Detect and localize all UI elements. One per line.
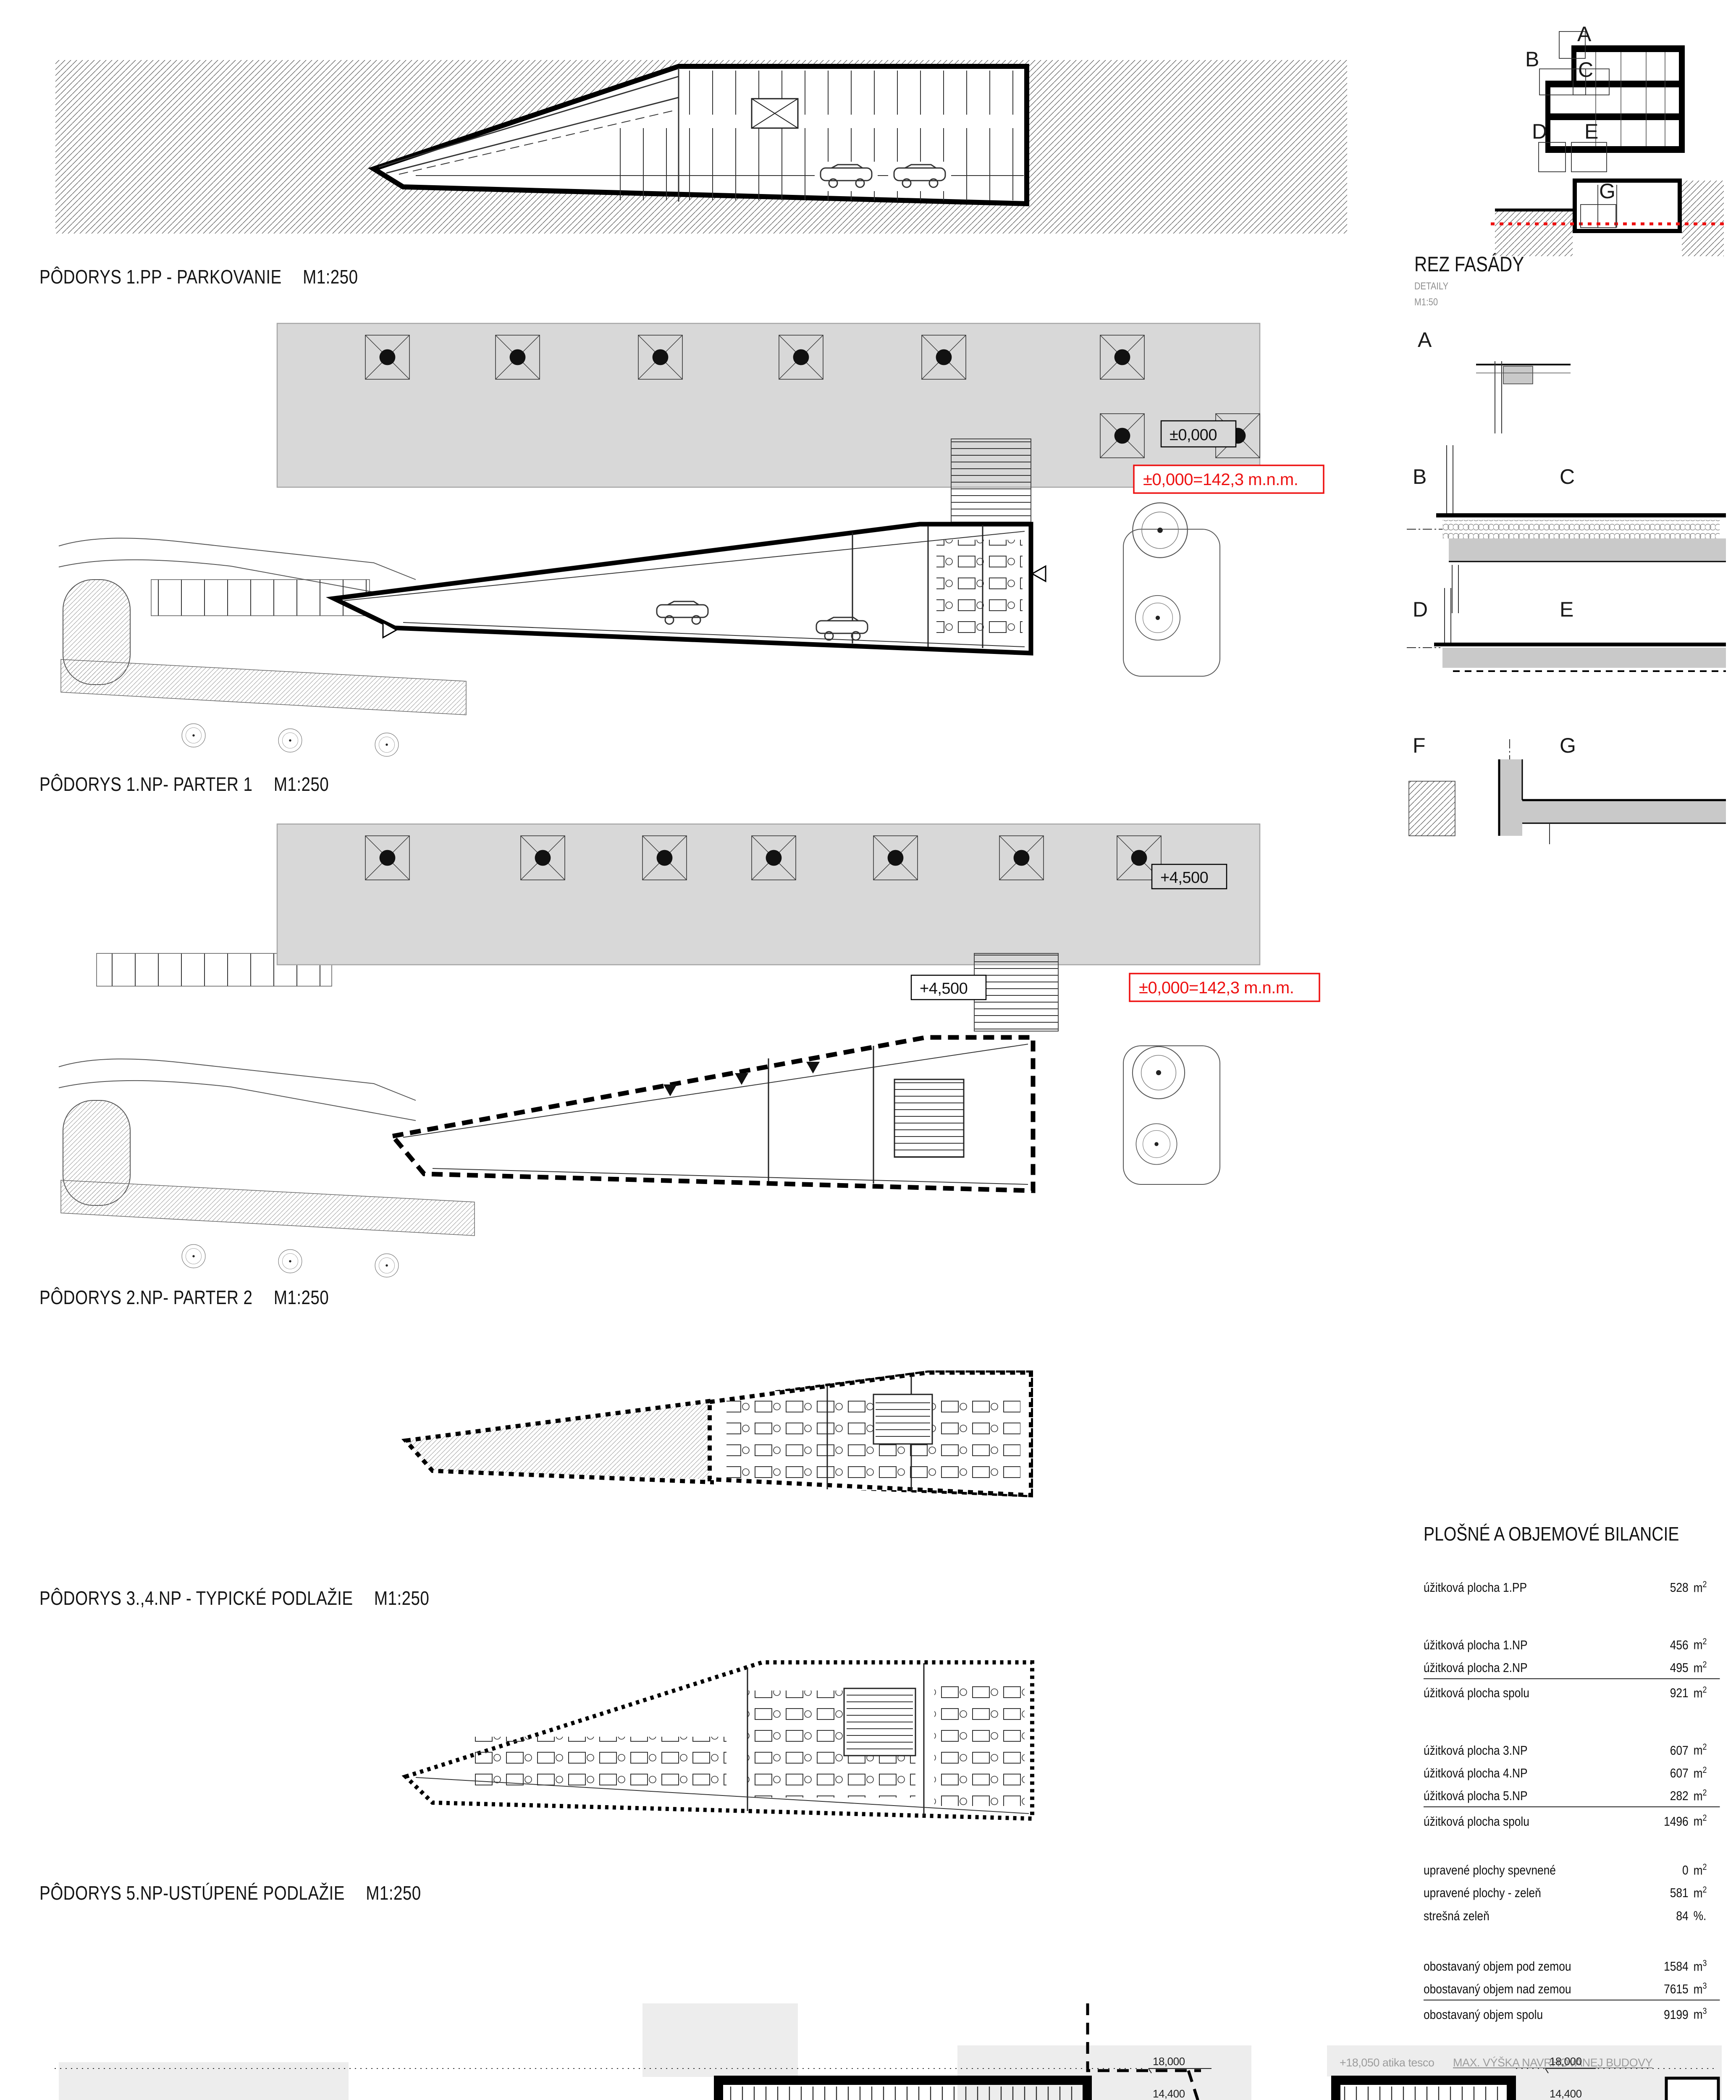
row-value: 607 [1642,1763,1689,1783]
table-row: upravené plochy spevnené 0 m2 [1424,1857,1720,1880]
plan-title: PÔDORYS 2.NP- PARTER 2 [39,1286,252,1308]
svg-text:18,000: 18,000 [1550,2055,1582,2068]
table-row: úžitková plocha 1.NP 456 m2 [1424,1632,1720,1654]
row-unit: m2 [1689,1680,1720,1703]
letter-f: F [1413,734,1425,757]
row-value: 456 [1642,1635,1689,1655]
plan-scale: M1:250 [303,266,358,288]
context-note: +18,050 atika tesco [1340,2056,1434,2069]
row-value: 921 [1642,1683,1689,1703]
level-annotation: ±0,000 [1170,426,1217,444]
sidewalk-hatch [61,1180,475,1236]
letter-b: B [1525,47,1539,71]
table-row: úžitková plocha 2.NP 495 m2 [1424,1655,1720,1677]
facade-key-drawing: A B C D E G [1491,13,1726,256]
letter-c: C [1578,58,1593,81]
facade-key-title: REZ FASÁDY [1414,252,1545,276]
plan-34np-drawing [349,1352,1062,1520]
row-unit: m3 [1689,1953,1720,1976]
table-separator [1424,1678,1720,1679]
row-unit: m2 [1689,1655,1720,1677]
plan-title: PÔDORYS 1.PP - PARKOVANIE [39,266,282,288]
table-separator [1424,2000,1720,2000]
letter-d: D [1413,598,1428,621]
row-label: úžitková plocha spolu [1424,1811,1642,1831]
svg-text:14,400: 14,400 [1550,2087,1582,2100]
row-unit: m2 [1689,1575,1720,1597]
row-label: úžitková plocha 2.NP [1424,1658,1642,1677]
letter-a: A [1577,22,1592,46]
row-label: upravené plochy spevnené [1424,1860,1642,1880]
plan-5np-drawing [349,1638,1062,1848]
table-row: úžitková plocha 3.NP 607 m2 [1424,1737,1720,1760]
table-row: úžitková plocha spolu 1496 m2 [1424,1808,1720,1831]
row-unit: m3 [1689,1976,1720,1999]
row-unit: m2 [1689,1808,1720,1831]
row-value: 528 [1642,1578,1689,1597]
entrance-arrow [1032,566,1046,581]
row-unit: m3 [1689,2001,1720,2024]
row-unit: m2 [1689,1760,1720,1783]
row-label: úžitková plocha 1.NP [1424,1635,1642,1655]
letter-e: E [1560,598,1573,621]
plan-34np-label: PÔDORYS 3.,4.NP - TYPICKÉ PODLAŽIEM1:250 [39,1587,503,1609]
plan-1np-label: PÔDORYS 1.NP- PARTER 1M1:250 [39,773,384,795]
plan-title: PÔDORYS 5.NP-USTÚPENÉ PODLAŽIE [39,1882,345,1904]
letter-c: C [1560,465,1575,488]
svg-text:14,400: 14,400 [1153,2087,1185,2100]
drawing-sheet: PÔDORYS 1.PP - PARKOVANIEM1:250 ±0,000 [0,0,1736,2100]
row-label: úžitková plocha spolu [1424,1683,1642,1703]
row-label: obostavaný objem nad zemou [1424,1979,1642,1999]
terrace-hatch [406,1402,710,1479]
plan-2np-label: PÔDORYS 2.NP- PARTER 2M1:250 [39,1286,384,1309]
plan-scale: M1:250 [366,1882,421,1904]
row-value: 581 [1642,1883,1689,1903]
letter-d: D [1532,120,1547,143]
plan-scale: M1:250 [374,1587,429,1609]
table-separator [1424,1806,1720,1807]
plan-title: PÔDORYS 1.NP- PARTER 1 [39,773,252,795]
facade-details-drawing: A B C D E F G [1403,319,1726,844]
plan-1np-drawing: ±0,000 ±0,000=142,3 m.n.m. [55,311,1344,781]
plan-1pp-label: PÔDORYS 1.PP - PARKOVANIEM1:250 [39,265,419,288]
table-row: úžitková plocha 5.NP 282 m2 [1424,1783,1720,1806]
plan-2np-drawing: +4,500 +4,500 ±0,000=142,3 m.n.m. [55,811,1344,1294]
letter-e: E [1584,120,1598,143]
plan-title: PÔDORYS 3.,4.NP - TYPICKÉ PODLAŽIE [39,1587,353,1609]
row-value: 607 [1642,1740,1689,1760]
letter-b: B [1413,465,1427,488]
table-row: obostavaný objem pod zemou 1584 m3 [1424,1953,1720,1976]
row-value: 495 [1642,1658,1689,1677]
row-label: úžitková plocha 1.PP [1424,1578,1642,1597]
plan-scale: M1:250 [274,773,329,795]
table-row: obostavaný objem spolu 9199 m3 [1424,2001,1720,2024]
row-label: strešná zeleň [1424,1906,1642,1926]
row-unit: m2 [1689,1737,1720,1760]
row-value: 7615 [1642,1979,1689,1999]
table-row: úžitková plocha 1.PP 528 m2 [1424,1575,1720,1597]
plan-1pp-drawing [55,59,1352,277]
row-value: 9199 [1642,2005,1689,2024]
row-value: 0 [1642,1860,1689,1880]
table-title: PLOŠNÉ A OBJEMOVÉ BILANCIE [1424,1522,1720,1545]
level-annotation: +4,500 [1160,869,1208,887]
datum-annotation: ±0,000=142,3 m.n.m. [1139,979,1294,997]
table-row: úžitková plocha 4.NP 607 m2 [1424,1760,1720,1783]
row-unit: m2 [1689,1880,1720,1903]
table-row: strešná zeleň 84 %. [1424,1903,1720,1925]
row-value: 84 [1642,1906,1689,1926]
row-value: 1584 [1642,1956,1689,1976]
row-label: obostavaný objem pod zemou [1424,1956,1642,1976]
row-label: úžitková plocha 4.NP [1424,1763,1642,1783]
row-value: 282 [1642,1786,1689,1806]
plan-5np-label: PÔDORYS 5.NP-USTÚPENÉ PODLAŽIEM1:250 [39,1882,494,1904]
facade-key-subtitle: DETAILY [1414,281,1455,292]
table-row: upravené plochy - zeleň 581 m2 [1424,1880,1720,1903]
row-unit: m2 [1689,1783,1720,1806]
table-row: úžitková plocha spolu 921 m2 [1424,1680,1720,1703]
sidewalk-hatch [61,659,466,715]
row-unit: m2 [1689,1632,1720,1654]
letter-a: A [1418,328,1432,352]
level-annotation: +4,500 [920,980,968,997]
row-label: upravené plochy - zeleň [1424,1883,1642,1903]
letter-g: G [1560,734,1576,757]
svg-text:18,000: 18,000 [1153,2055,1185,2068]
row-label: úžitková plocha 5.NP [1424,1786,1642,1806]
row-label: obostavaný objem spolu [1424,2005,1642,2024]
row-unit: m2 [1689,1857,1720,1880]
table-row: obostavaný objem nad zemou 7615 m3 [1424,1976,1720,1999]
facade-key-scale: M1:50 [1414,297,1442,308]
datum-annotation: ±0,000=142,3 m.n.m. [1143,470,1298,489]
area-volume-table: PLOŠNÉ A OBJEMOVÉ BILANCIE úžitková ploc… [1424,1522,1720,2024]
row-value: 1496 [1642,1811,1689,1831]
plan-scale: M1:250 [274,1286,329,1308]
row-unit: %. [1689,1903,1720,1925]
longitudinal-section-drawing: 18,00014,40011,1007,8004,5000,250 ±0,000… [55,1999,1256,2100]
letter-g: G [1599,179,1615,203]
row-label: úžitková plocha 3.NP [1424,1740,1642,1760]
